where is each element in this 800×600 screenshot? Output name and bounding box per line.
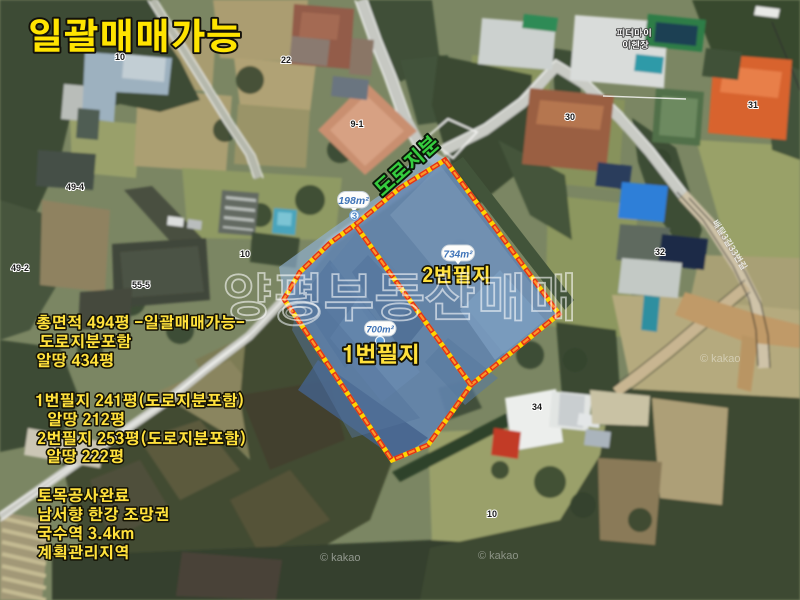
svg-text:55-5: 55-5 [132,280,150,290]
svg-text:49-4: 49-4 [66,182,84,192]
svg-text:© kakao: © kakao [320,552,361,564]
svg-text:734m²: 734m² [444,250,474,261]
svg-text:© kakao: © kakao [478,550,519,562]
svg-text:10: 10 [115,52,125,62]
svg-text:30: 30 [565,112,575,122]
svg-text:32: 32 [655,247,665,257]
svg-text:34: 34 [532,402,542,412]
svg-text:10: 10 [240,249,250,259]
svg-text:10: 10 [487,509,497,519]
svg-text:22: 22 [281,55,291,65]
svg-text:198m²: 198m² [338,195,369,207]
svg-text:© kakao: © kakao [700,353,741,365]
svg-text:31: 31 [748,100,758,110]
svg-text:700m²: 700m² [366,325,394,336]
svg-text:3: 3 [352,211,357,222]
svg-text:9-1: 9-1 [350,119,363,129]
svg-text:49-2: 49-2 [11,263,29,273]
